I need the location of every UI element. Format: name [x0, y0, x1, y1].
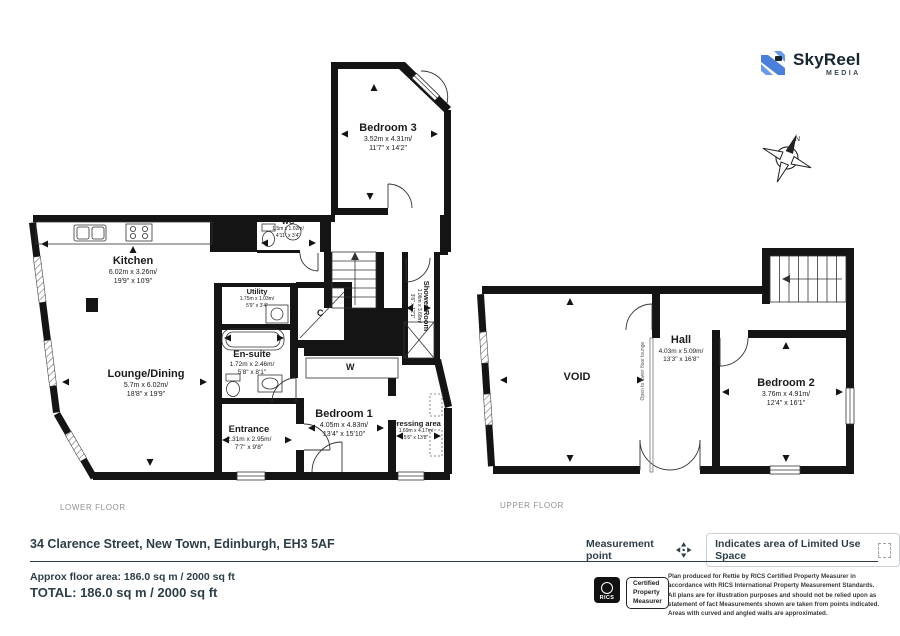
upper-staircase [770, 256, 846, 302]
room-dim-imperial: 18'8" x 19'9" [76, 391, 216, 400]
total-floor-area: TOTAL: 186.0 sq m / 2000 sq ft [30, 585, 217, 600]
room-name: Shower Room [422, 258, 431, 354]
rics-disclaimer: Plan produced for Rettie by RICS Certifi… [668, 572, 880, 618]
room-name: Dressing area [378, 419, 454, 428]
limited-use-label: Indicates area of Limited Use Space [715, 538, 870, 562]
compass-north-label: N [795, 136, 800, 143]
room-label-kitchen: Kitchen 6.02m x 3.26m/ 19'9" x 10'9" [63, 255, 203, 286]
room-label-bedroom2: Bedroom 2 3.76m x 4.91m/ 12'4" x 16'1" [726, 377, 846, 408]
room-name: Bedroom 3 [328, 122, 448, 136]
room-label-lounge-dining: Lounge/Dining 5.7m x 6.02m/ 18'8" x 19'9… [76, 368, 216, 399]
room-dim-imperial: 11'7" x 14'2" [328, 145, 448, 154]
room-name: Lounge/Dining [76, 368, 216, 382]
room-dim-metric: 3.76m x 4.91m/ [726, 391, 846, 400]
room-label-shower-room: Shower Room 1.06m x 3.68m/ 3'6" x 12'1" [409, 258, 431, 354]
lower-floor-label: LOWER FLOOR [60, 503, 126, 512]
room-name: Kitchen [63, 255, 203, 269]
room-dim-metric: 1.06m x 3.68m/ [415, 258, 421, 354]
logo-subtitle: MEDIA [826, 70, 861, 77]
room-name: WC [256, 217, 320, 226]
room-label-utility: Utility 1.75m x 1.03m/ 5'9" x 3'4" [217, 287, 297, 309]
room-dim-imperial: 12'4" x 16'1" [726, 400, 846, 409]
closet-label: C [317, 308, 324, 318]
limited-use-dashed-square-icon [878, 543, 891, 558]
rics-logo: RICS [594, 577, 620, 603]
room-dim-metric: 6.02m x 3.26m/ [63, 269, 203, 278]
logo-wordmark: SkyReel [793, 50, 861, 70]
room-label-void: VOID [527, 371, 627, 385]
room-dim-imperial: 3'6" x 12'1" [409, 258, 415, 354]
footer-divider [30, 561, 878, 562]
floorplan-page: N SkyReel MEDIA Bedroom 3 3.52m x 4.31m/… [0, 0, 900, 636]
skyreel-logo-icon [760, 50, 786, 76]
measurement-point-label: Measurement point [586, 538, 670, 562]
room-dim-metric: 5.7m x 6.02m/ [76, 382, 216, 391]
upper-floor-label: UPPER FLOOR [500, 501, 564, 510]
room-name: VOID [527, 371, 627, 385]
lower-staircase [332, 252, 376, 308]
room-dim-metric: 1.72m x 2.46m/ [202, 361, 302, 369]
wardrobe-label: W [346, 362, 355, 372]
room-dim-imperial: 5'6" x 13'8" [378, 435, 454, 441]
rics-lens-icon [601, 582, 613, 594]
room-dim-metric: 3.52m x 4.31m/ [328, 136, 448, 145]
room-name: Utility [217, 287, 297, 296]
property-address: 34 Clarence Street, New Town, Edinburgh,… [30, 537, 335, 551]
room-label-dressing-area: Dressing area 1.69m x 4.17m/ 5'6" x 13'8… [378, 419, 454, 441]
open-to-lounge-annotation: Open to lower floor lounge [640, 321, 646, 421]
room-label-wc: WC 1.5m x 1.02m/ 4'11" x 3'4" [256, 217, 320, 239]
rics-certified-badge: Certified Property Measurer [626, 577, 669, 609]
approx-floor-area: Approx floor area: 186.0 sq m / 2000 sq … [30, 571, 235, 583]
measurement-point-icon [675, 540, 692, 560]
room-dim-imperial: 5'9" x 3'4" [217, 303, 297, 309]
room-label-bedroom3: Bedroom 3 3.52m x 4.31m/ 11'7" x 14'2" [328, 122, 448, 153]
skyreel-logo: SkyReel MEDIA [760, 50, 861, 77]
room-label-ensuite: En-suite 1.72m x 2.46m/ 5'8" x 8'1" [202, 349, 302, 377]
room-dim-imperial: 19'9" x 10'9" [63, 278, 203, 287]
room-dim-imperial: 4'11" x 3'4" [256, 233, 320, 239]
room-name: Bedroom 2 [726, 377, 846, 391]
room-dim-imperial: 7'7" x 9'8" [189, 444, 309, 452]
compass-icon [753, 124, 821, 192]
room-dim-imperial: 5'8" x 8'1" [202, 369, 302, 377]
room-name: En-suite [202, 349, 302, 361]
